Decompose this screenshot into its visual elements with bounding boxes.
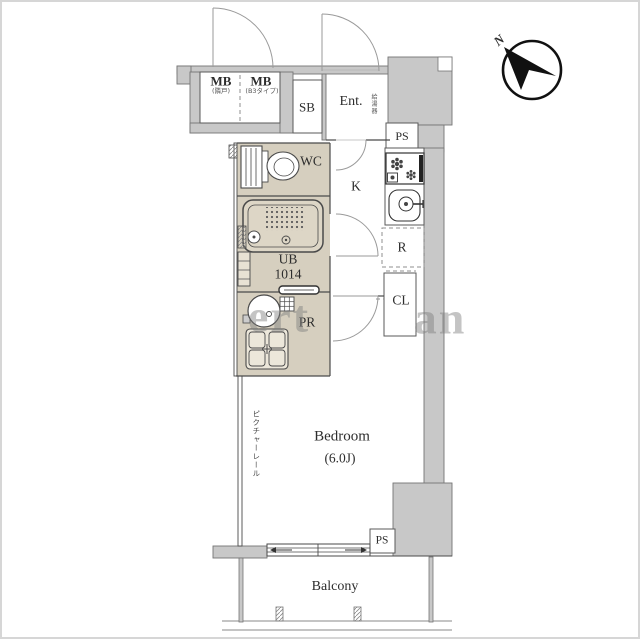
label-mb-right: MB bbox=[251, 75, 272, 88]
label-entrance: Ent. bbox=[340, 95, 363, 109]
label-refrigerator: R bbox=[397, 240, 406, 254]
label-mb-right-sub: (B3タイプ) bbox=[245, 88, 278, 95]
label-bedroom-size: (6.0J) bbox=[324, 451, 355, 465]
entry-door-neighbor bbox=[213, 8, 273, 68]
label-unit-bath-size: 1014 bbox=[275, 267, 302, 281]
bathtub-icon bbox=[243, 200, 323, 252]
label-bedroom: Bedroom bbox=[314, 430, 370, 445]
bedroom-door bbox=[333, 296, 378, 341]
label-mb-left-sub: (隣戸) bbox=[212, 88, 230, 95]
label-balcony: Balcony bbox=[312, 580, 359, 594]
label-kitchen: K bbox=[351, 179, 361, 193]
label-unit-bath: UB bbox=[279, 252, 298, 266]
label-closet: CL bbox=[392, 293, 409, 307]
floor-plan: MB (隣戸) MB (B3タイプ) SB Ent. 給湯器 PS WC K U… bbox=[0, 0, 640, 639]
label-picture-rail: ピクチャーレール bbox=[252, 410, 260, 478]
wall-notch bbox=[438, 57, 452, 71]
washroom-door bbox=[336, 214, 378, 256]
floor-plan-drawing bbox=[0, 0, 640, 639]
compass-icon bbox=[503, 41, 561, 99]
kitchen-sink-icon bbox=[389, 190, 423, 221]
label-pipe-space-bottom: PS bbox=[376, 535, 389, 547]
entrance-hall-door bbox=[336, 140, 366, 170]
entry-door-unit bbox=[322, 14, 379, 71]
watermark-right: an bbox=[414, 292, 467, 345]
stove-icon bbox=[386, 153, 424, 184]
label-water-heater: 給湯器 bbox=[370, 94, 376, 115]
label-pipe-space-top: PS bbox=[395, 130, 408, 142]
label-wc: WC bbox=[300, 154, 322, 168]
label-mb-left: MB bbox=[211, 75, 232, 88]
bath-shelf-icon bbox=[238, 252, 250, 286]
watermark-left: ert bbox=[248, 290, 310, 343]
sliding-window-icon bbox=[267, 544, 370, 556]
label-shoe-box: SB bbox=[299, 101, 315, 114]
